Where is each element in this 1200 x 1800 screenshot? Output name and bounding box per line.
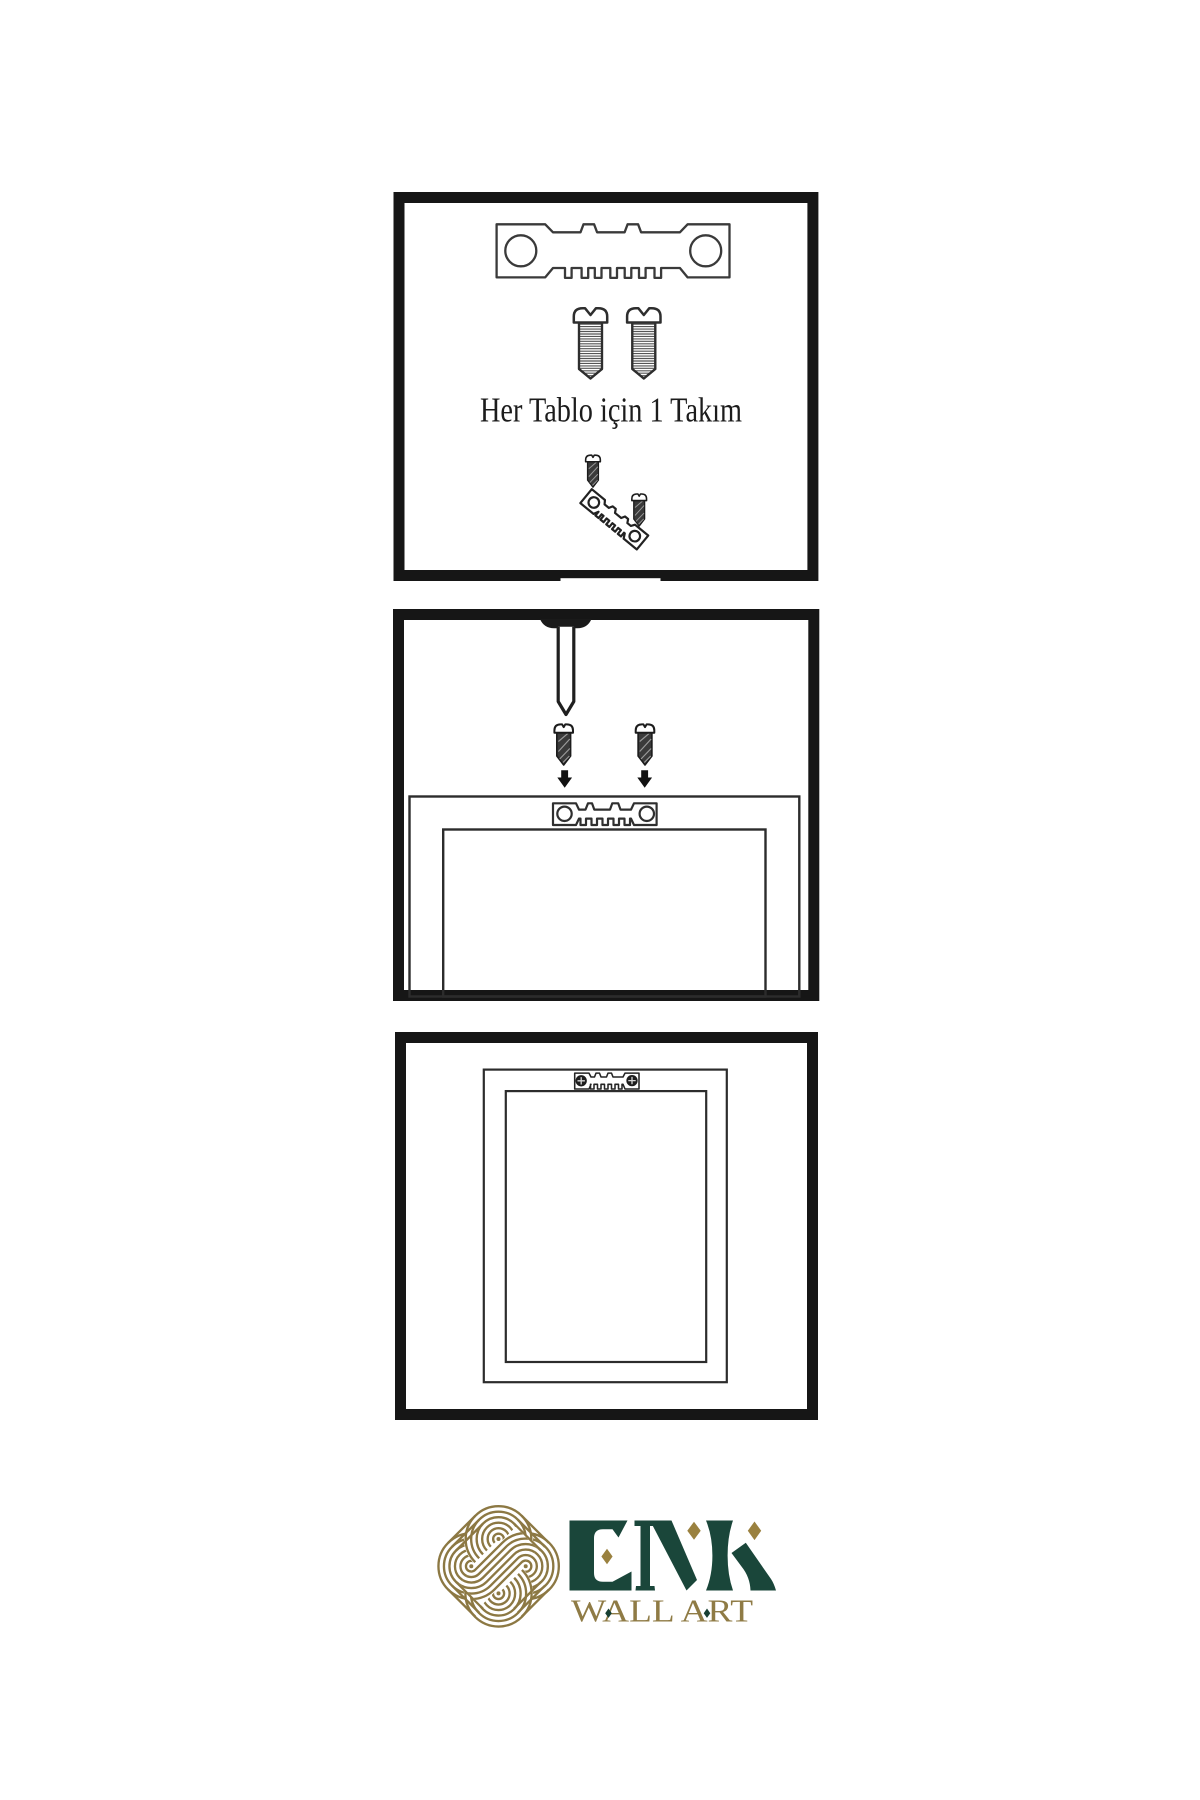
svg-text:Her Tablo için 1 Takım: Her Tablo için 1 Takım bbox=[480, 391, 742, 430]
svg-text:WALL ART: WALL ART bbox=[571, 1593, 754, 1629]
